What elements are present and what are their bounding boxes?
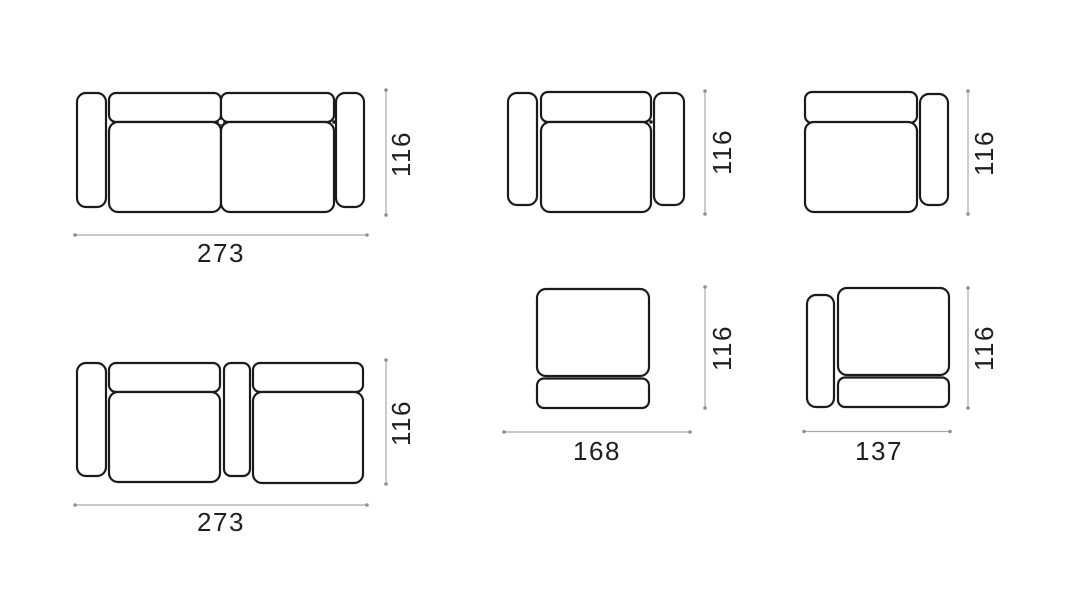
diagram-sofa-two-arms: 116 273 xyxy=(73,88,416,268)
left-armrest xyxy=(77,93,106,207)
left-armrest xyxy=(807,295,834,407)
diagram-armchair: 116 xyxy=(508,89,737,216)
dimension-end-dot xyxy=(703,89,707,93)
furniture-dimension-sheet: 116 273 116 116 116 xyxy=(0,0,1067,600)
width-dimension-label: 273 xyxy=(197,238,245,268)
dimension-end-dot xyxy=(384,482,388,486)
width-dimension-label: 273 xyxy=(197,507,245,537)
dimension-end-dot xyxy=(365,233,369,237)
dimension-end-dot xyxy=(703,285,707,289)
dimension-end-dot xyxy=(365,503,369,507)
right-armrest xyxy=(336,93,364,207)
height-dimension-label: 116 xyxy=(386,131,416,177)
height-dimension-label: 116 xyxy=(707,325,737,371)
diagram-module-left-arm: 116 137 xyxy=(802,286,999,466)
dimension-end-dot xyxy=(384,358,388,362)
seam-junction-dot xyxy=(649,120,653,124)
dimension-end-dot xyxy=(802,430,806,434)
dimension-end-dot xyxy=(948,430,952,434)
dimension-end-dot xyxy=(502,430,506,434)
seat xyxy=(838,288,949,375)
width-dimension-label: 137 xyxy=(855,436,903,466)
backrest-right xyxy=(221,93,334,122)
seat xyxy=(537,289,649,376)
dimension-end-dot xyxy=(703,212,707,216)
backrest-left xyxy=(109,93,221,122)
seat-left xyxy=(109,122,221,212)
front-strip xyxy=(537,379,649,409)
diagram-canvas: 116 273 116 116 116 xyxy=(0,0,1067,600)
dimension-end-dot xyxy=(966,406,970,410)
dimension-end-dot xyxy=(966,212,970,216)
left-armrest xyxy=(508,93,537,205)
width-dimension-label: 168 xyxy=(573,436,621,466)
right-armrest xyxy=(654,93,684,205)
seam-junction-dot xyxy=(332,120,336,124)
dimension-end-dot xyxy=(966,89,970,93)
dimension-end-dot xyxy=(73,233,77,237)
dimension-end-dot xyxy=(73,503,77,507)
seat xyxy=(805,122,917,212)
seat-right xyxy=(221,122,334,212)
center-connector xyxy=(224,363,250,476)
dimension-end-dot xyxy=(966,286,970,290)
dimension-end-dot xyxy=(688,430,692,434)
diagram-module-right-arm: 116 xyxy=(805,89,999,216)
height-dimension-label: 116 xyxy=(969,325,999,371)
diagram-sofa-left-arm-connector: 116 273 xyxy=(73,358,416,537)
height-dimension-label: 116 xyxy=(969,130,999,176)
backrest-left xyxy=(109,363,220,392)
dimension-end-dot xyxy=(384,88,388,92)
seat xyxy=(541,122,651,212)
seat-left xyxy=(109,392,220,482)
backrest-right xyxy=(253,363,363,392)
backrest xyxy=(541,92,651,122)
height-dimension-label: 116 xyxy=(386,400,416,446)
backrest xyxy=(805,92,917,123)
left-armrest xyxy=(77,363,106,476)
front-strip xyxy=(838,378,949,408)
dimension-end-dot xyxy=(703,406,707,410)
seat-right xyxy=(253,392,363,483)
seam-junction-dot xyxy=(218,119,224,125)
height-dimension-label: 116 xyxy=(707,129,737,175)
dimension-end-dot xyxy=(384,213,388,217)
right-armrest xyxy=(920,94,948,205)
diagram-armless-module: 116 168 xyxy=(502,285,737,466)
